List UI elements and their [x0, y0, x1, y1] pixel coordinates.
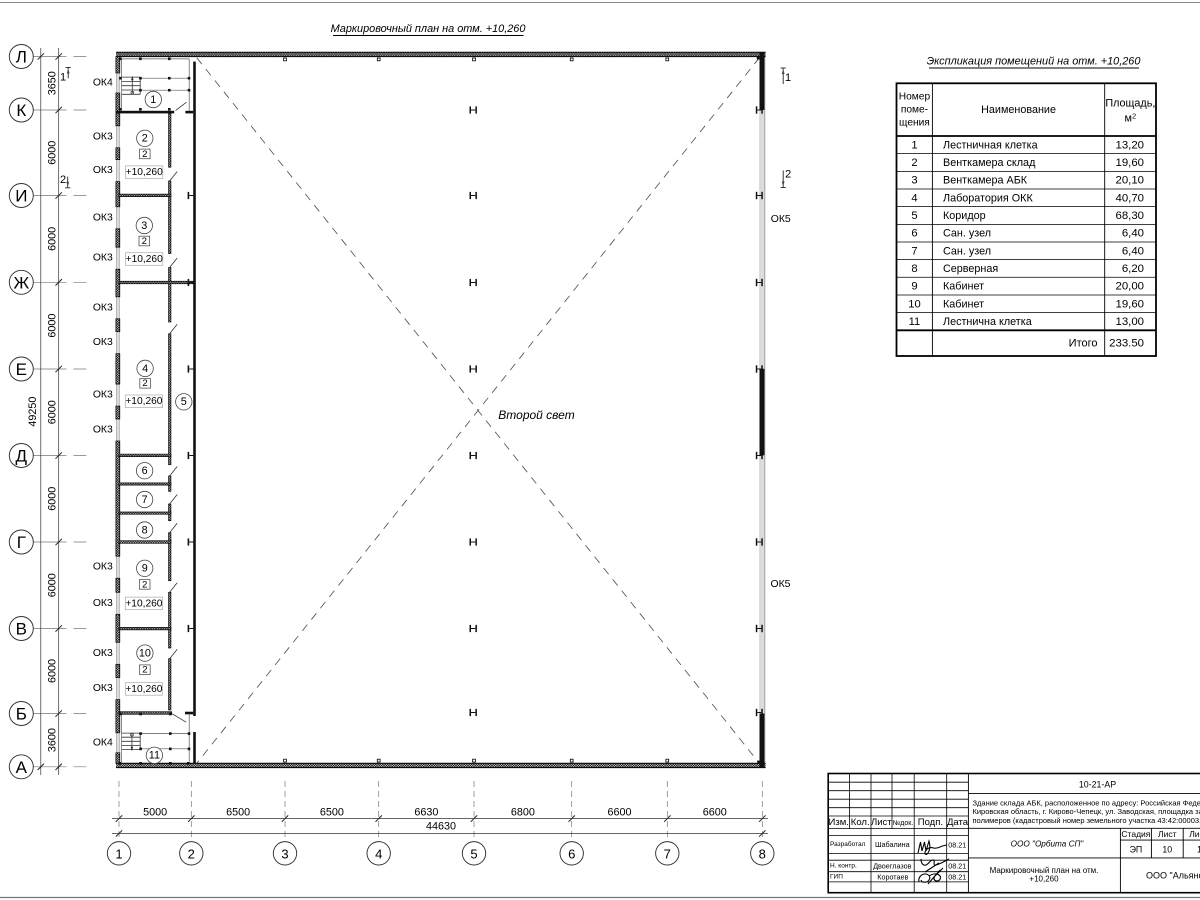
svg-text:Сан. узел: Сан. узел	[943, 245, 991, 257]
svg-text:+10,260: +10,260	[125, 684, 162, 695]
svg-text:А: А	[16, 758, 28, 777]
svg-text:5: 5	[470, 846, 477, 861]
svg-text:полимеров (кадастровый номер з: полимеров (кадастровый номер земельного …	[973, 816, 1200, 825]
svg-text:ГИП: ГИП	[830, 873, 843, 880]
svg-text:поме-: поме-	[901, 105, 928, 116]
svg-text:Экспликация помещений на отм.: Экспликация помещений на отм. +10,260	[927, 56, 1141, 68]
svg-text:10-21-АР: 10-21-АР	[1079, 779, 1116, 789]
svg-text:7: 7	[911, 245, 917, 257]
svg-text:6,40: 6,40	[1122, 228, 1144, 240]
svg-text:6,40: 6,40	[1122, 245, 1144, 257]
svg-text:Е: Е	[16, 360, 27, 379]
svg-text:ОК3: ОК3	[93, 683, 113, 694]
svg-text:Наименование: Наименование	[981, 104, 1056, 116]
svg-text:ОК3: ОК3	[93, 131, 113, 142]
svg-text:2: 2	[142, 236, 147, 247]
svg-text:6000: 6000	[46, 227, 58, 251]
svg-text:6: 6	[911, 228, 917, 240]
svg-text:6000: 6000	[46, 573, 58, 597]
svg-text:8: 8	[911, 263, 917, 275]
svg-text:2: 2	[188, 846, 195, 861]
svg-text:1: 1	[911, 139, 917, 151]
svg-text:13,00: 13,00	[1115, 316, 1144, 328]
svg-text:8: 8	[142, 524, 148, 536]
svg-text:ОК5: ОК5	[771, 214, 791, 225]
svg-text:2: 2	[142, 378, 147, 389]
svg-text:1: 1	[60, 72, 66, 84]
svg-text:Изм.: Изм.	[829, 817, 849, 828]
svg-text:Разработал: Разработал	[830, 840, 866, 848]
svg-text:6630: 6630	[414, 806, 438, 818]
svg-text:Второй свет: Второй свет	[498, 408, 574, 422]
svg-text:Коридор: Коридор	[943, 210, 986, 222]
svg-text:ОК3: ОК3	[93, 212, 113, 223]
svg-text:ОК3: ОК3	[93, 425, 113, 436]
svg-text:Д: Д	[16, 447, 28, 466]
svg-text:6500: 6500	[226, 806, 250, 818]
svg-text:4: 4	[375, 846, 382, 861]
svg-text:2: 2	[142, 133, 148, 145]
svg-text:8: 8	[759, 846, 766, 861]
svg-text:6000: 6000	[46, 141, 58, 165]
svg-text:Венткамера АБК: Венткамера АБК	[943, 175, 1028, 187]
svg-text:2: 2	[911, 157, 917, 169]
svg-text:6600: 6600	[607, 806, 631, 818]
svg-text:+10,260: +10,260	[1029, 874, 1059, 883]
svg-text:6: 6	[142, 465, 148, 477]
svg-text:Н. контр.: Н. контр.	[830, 863, 857, 870]
svg-text:Двоеглазов: Двоеглазов	[873, 862, 911, 871]
svg-text:ООО "Орбита СП": ООО "Орбита СП"	[1011, 839, 1085, 848]
svg-text:№док.: №док.	[893, 820, 914, 827]
svg-text:2: 2	[60, 174, 66, 186]
svg-text:+10,260: +10,260	[126, 167, 163, 178]
svg-text:233.50: 233.50	[1109, 338, 1144, 350]
svg-text:Кабинет: Кабинет	[943, 298, 984, 310]
svg-text:Кировская область, г. Кирово-Ч: Кировская область, г. Кирово-Чепецк, ул.…	[973, 807, 1200, 816]
svg-text:Итого: Итого	[1069, 338, 1098, 350]
svg-text:10: 10	[139, 648, 151, 660]
svg-text:Номер: Номер	[899, 92, 931, 103]
svg-text:ОК3: ОК3	[93, 562, 113, 573]
svg-text:ОК3: ОК3	[93, 337, 113, 348]
svg-text:Листов: Листов	[1189, 829, 1200, 839]
svg-text:9: 9	[142, 563, 148, 575]
svg-text:ОК5: ОК5	[771, 579, 791, 590]
svg-text:Сан. узел: Сан. узел	[943, 228, 991, 240]
svg-text:3: 3	[141, 220, 147, 232]
svg-text:К: К	[16, 101, 26, 120]
svg-text:19,60: 19,60	[1115, 298, 1144, 310]
svg-text:10: 10	[1162, 844, 1172, 854]
svg-text:Шабалина: Шабалина	[875, 840, 910, 849]
svg-text:В: В	[16, 620, 27, 639]
svg-text:3: 3	[911, 175, 917, 187]
svg-text:Кол.: Кол.	[851, 817, 870, 828]
svg-text:6000: 6000	[46, 400, 58, 424]
svg-text:40,70: 40,70	[1115, 192, 1144, 204]
svg-text:Лестничная клетка: Лестничная клетка	[943, 139, 1038, 151]
svg-text:Дата: Дата	[947, 817, 969, 828]
svg-text:5000: 5000	[143, 806, 167, 818]
svg-text:2: 2	[142, 665, 147, 676]
svg-text:Подп.: Подп.	[918, 817, 943, 828]
svg-text:ОК3: ОК3	[93, 302, 113, 313]
svg-text:Площадь,: Площадь,	[1105, 98, 1155, 110]
svg-text:ОК3: ОК3	[93, 598, 113, 609]
svg-text:1: 1	[785, 72, 791, 84]
svg-text:19,60: 19,60	[1115, 157, 1144, 169]
svg-text:Маркировочный план на отм. +10: Маркировочный план на отм. +10,260	[331, 23, 526, 35]
svg-text:щения: щения	[899, 118, 930, 129]
svg-text:6500: 6500	[320, 806, 344, 818]
svg-text:7: 7	[142, 494, 148, 506]
svg-text:5: 5	[911, 210, 917, 222]
svg-text:68,30: 68,30	[1115, 210, 1144, 222]
svg-text:Кабинет: Кабинет	[943, 281, 984, 293]
svg-text:11: 11	[149, 750, 160, 762]
svg-text:1: 1	[150, 94, 156, 106]
svg-text:Б: Б	[16, 705, 27, 724]
svg-text:Серверная: Серверная	[943, 263, 998, 275]
svg-text:ОК4: ОК4	[93, 737, 113, 748]
svg-text:11: 11	[909, 316, 921, 328]
svg-text:3650: 3650	[46, 71, 58, 95]
svg-text:9: 9	[911, 281, 917, 293]
svg-text:49250: 49250	[27, 397, 39, 427]
svg-text:6800: 6800	[511, 806, 535, 818]
svg-text:6600: 6600	[703, 806, 727, 818]
svg-text:6000: 6000	[46, 487, 58, 511]
svg-text:08.21: 08.21	[948, 862, 966, 871]
svg-text:6000: 6000	[46, 314, 58, 338]
svg-text:6: 6	[568, 846, 575, 861]
svg-text:2: 2	[142, 149, 147, 160]
svg-text:ОК4: ОК4	[93, 78, 113, 89]
svg-text:1: 1	[115, 846, 122, 861]
svg-text:13,20: 13,20	[1115, 139, 1144, 151]
svg-text:ОК3: ОК3	[93, 253, 113, 264]
svg-text:Лаборатория ОКК: Лаборатория ОКК	[943, 192, 1033, 204]
svg-text:Венткамера склад: Венткамера склад	[943, 157, 1036, 169]
svg-text:3600: 3600	[46, 728, 58, 752]
svg-text:20,00: 20,00	[1115, 281, 1144, 293]
svg-text:2: 2	[785, 169, 791, 181]
svg-text:ЭП: ЭП	[1130, 844, 1143, 854]
svg-text:И: И	[15, 187, 27, 206]
svg-text:Ж: Ж	[13, 273, 29, 292]
svg-text:08.21: 08.21	[948, 840, 966, 849]
svg-text:20,10: 20,10	[1115, 175, 1144, 187]
svg-text:+10,260: +10,260	[125, 598, 162, 609]
svg-text:Коротаев: Коротаев	[877, 872, 908, 881]
svg-text:Л: Л	[16, 48, 27, 67]
svg-text:5: 5	[181, 396, 187, 408]
svg-text:08.21: 08.21	[948, 873, 966, 882]
svg-text:ОК3: ОК3	[93, 165, 113, 176]
svg-text:3: 3	[281, 846, 288, 861]
svg-text:Лист: Лист	[1158, 829, 1177, 839]
svg-text:10: 10	[908, 298, 920, 310]
svg-text:+10,260: +10,260	[126, 254, 163, 265]
svg-text:Г: Г	[17, 533, 26, 552]
svg-text:+10,260: +10,260	[125, 396, 162, 407]
svg-text:6,20: 6,20	[1122, 263, 1144, 275]
svg-text:6000: 6000	[46, 659, 58, 683]
svg-text:ОК3: ОК3	[93, 390, 113, 401]
svg-text:Стадия: Стадия	[1121, 829, 1150, 839]
svg-text:ОК3: ОК3	[93, 648, 113, 659]
svg-text:ООО "Альянс: ООО "Альянс	[1146, 871, 1200, 881]
svg-text:7: 7	[664, 846, 671, 861]
svg-text:2: 2	[142, 579, 147, 590]
svg-text:44630: 44630	[426, 821, 456, 833]
svg-text:4: 4	[142, 363, 148, 375]
svg-text:Лестнична клетка: Лестнична клетка	[943, 316, 1032, 328]
svg-text:4: 4	[911, 192, 917, 204]
svg-text:Лист: Лист	[871, 817, 892, 828]
svg-text:Здание склада АБК, расположенн: Здание склада АБК, расположенное по адре…	[973, 798, 1200, 807]
